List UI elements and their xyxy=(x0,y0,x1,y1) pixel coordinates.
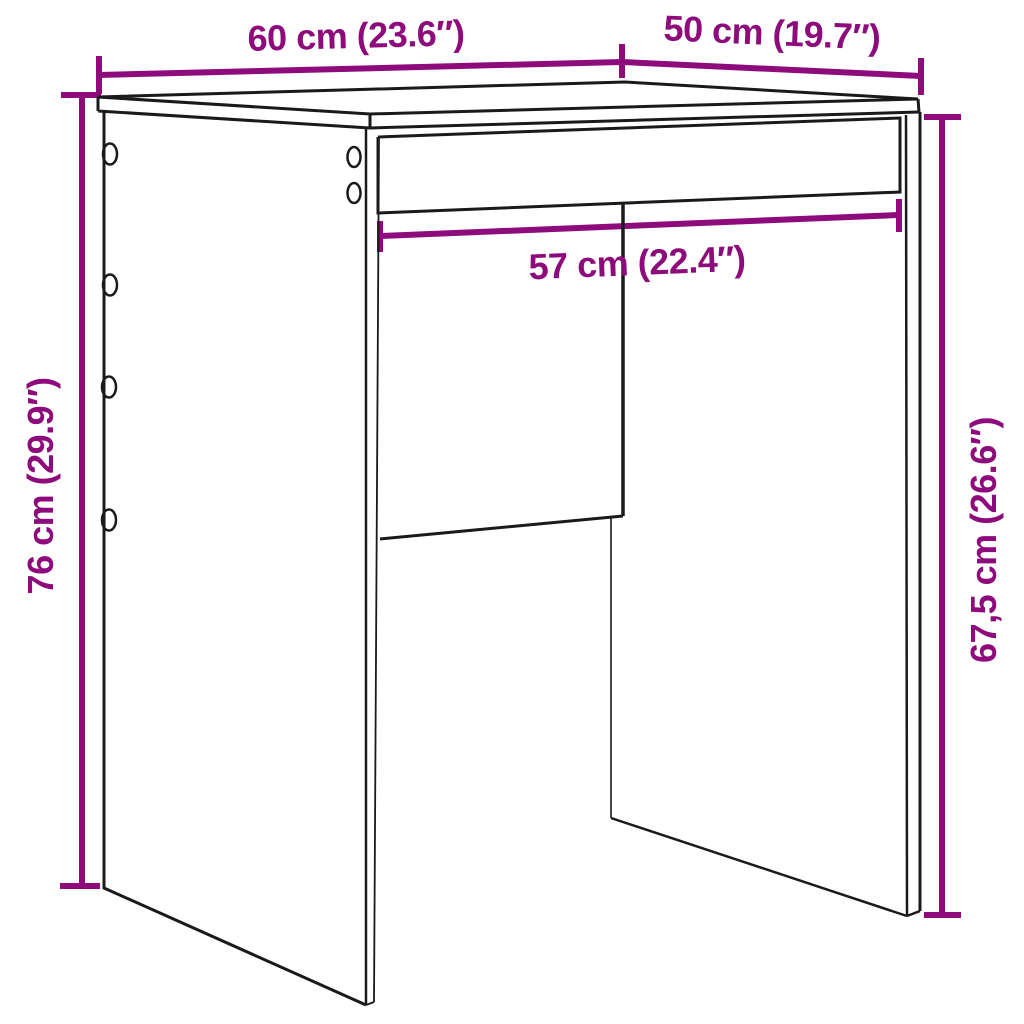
front-apron xyxy=(378,118,900,213)
dimension-label-inner-width: 57 cm (22.4″) xyxy=(528,238,746,289)
dimension-label-height: 76 cm (29.9″) xyxy=(20,378,62,595)
assembly-hole xyxy=(348,183,361,203)
dimension-line-height xyxy=(60,95,101,886)
assembly-hole xyxy=(348,147,361,167)
left-side-panel xyxy=(102,112,379,1005)
dimension-label-width: 60 cm (23.6″) xyxy=(247,12,465,60)
dimension-label-clearance-height: 67,5 cm (26.6″) xyxy=(963,417,1005,663)
dimension-line-clearance-height xyxy=(924,117,961,915)
furniture-line-drawing xyxy=(0,0,1024,1024)
dimension-diagram: 60 cm (23.6″) 50 cm (19.7″) 57 cm (22.4″… xyxy=(0,0,1024,1024)
right-side-panel xyxy=(611,112,920,916)
